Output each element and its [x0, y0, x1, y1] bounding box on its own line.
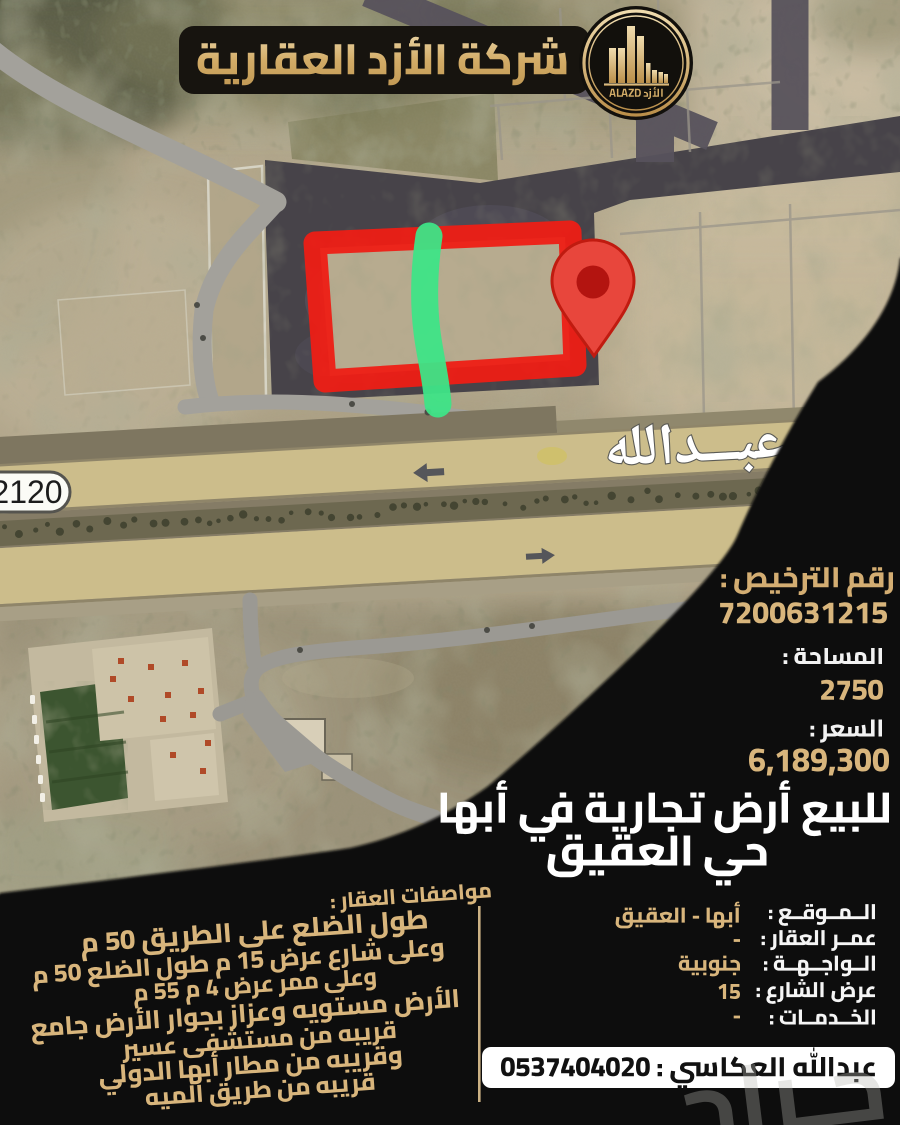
svg-text:2120: 2120 [0, 474, 63, 510]
